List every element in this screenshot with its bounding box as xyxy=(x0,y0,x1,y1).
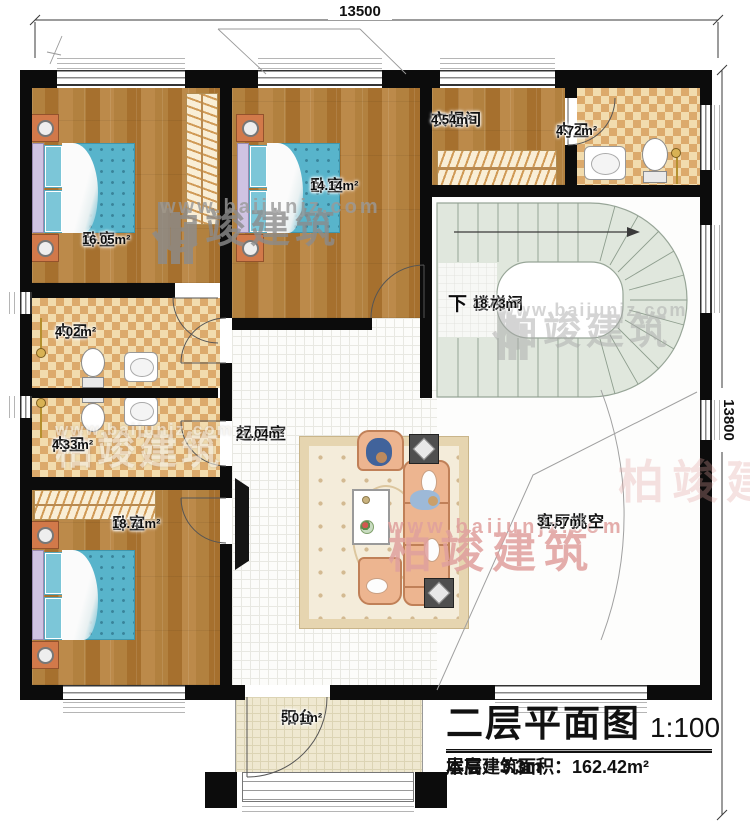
dimension-top: 13500 xyxy=(328,4,392,20)
plan-title-row: 二层平面图 1:100 xyxy=(446,704,734,745)
floor-height-label: 层高： xyxy=(446,757,500,777)
floor-height-line: 层高：3.3m xyxy=(446,753,541,779)
void-boundary xyxy=(437,390,697,690)
dimension-right: 13800 xyxy=(720,388,736,452)
leader-lines xyxy=(47,29,406,74)
floor-height-value: 3.3m xyxy=(500,757,541,777)
title-block: 二层平面图 1:100 本层建筑面积：162.42m² 层高：3.3m xyxy=(446,704,734,745)
floor-area-value: 162.42m² xyxy=(572,757,649,777)
title-underline-thin xyxy=(446,750,712,751)
plan-title: 二层平面图 xyxy=(446,704,641,745)
plan-scale: 1:100 xyxy=(650,711,720,745)
floor-plan-canvas: 13500 13800 柏竣建筑 www.baijunjz.com 柏竣建筑 w… xyxy=(0,0,750,826)
dimension-lines xyxy=(30,15,727,820)
